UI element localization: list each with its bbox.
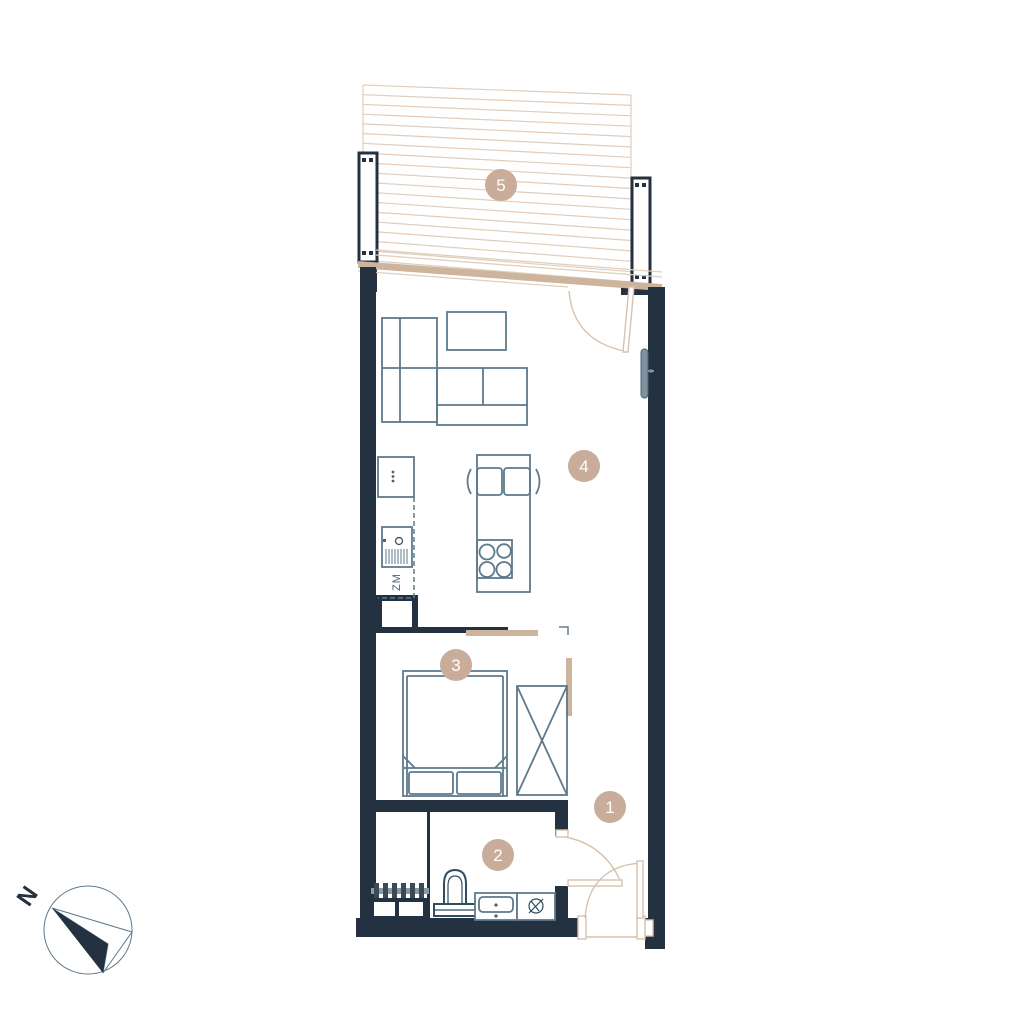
bedroom-sliding-door-horizontal xyxy=(466,630,538,636)
bedroom xyxy=(403,671,567,796)
compass-circle xyxy=(44,886,132,974)
pillow xyxy=(457,772,501,794)
floor-plan: ZM xyxy=(0,0,1024,1024)
towel-radiator xyxy=(371,883,429,898)
living-room xyxy=(382,312,654,425)
vanity-sink xyxy=(475,893,517,920)
wall-left xyxy=(360,267,376,937)
wall-bedroom-bathroom xyxy=(360,800,568,812)
cooktop xyxy=(477,540,512,578)
bathroom-partition xyxy=(427,812,430,900)
bed xyxy=(403,671,507,796)
kitchen-shaft xyxy=(376,595,418,633)
compass: N xyxy=(12,882,132,974)
coffee-table xyxy=(447,312,506,350)
compass-arrow-fill xyxy=(52,908,108,973)
room-label-3: 3 xyxy=(440,649,472,681)
room-label-5: 5 xyxy=(485,169,517,201)
bar-stools xyxy=(468,468,540,495)
balcony-screen-left xyxy=(359,153,377,262)
pillow xyxy=(409,772,453,794)
kitchen-island xyxy=(468,455,540,592)
wall-bathroom-hall-bottom xyxy=(555,886,568,918)
doors xyxy=(556,287,653,939)
svg-text:3: 3 xyxy=(451,656,460,675)
svg-text:2: 2 xyxy=(493,846,502,865)
wall-right xyxy=(648,287,665,949)
washing-machine xyxy=(517,893,555,920)
svg-text:1: 1 xyxy=(605,798,614,817)
kitchen-sink xyxy=(382,527,412,567)
bathroom-door xyxy=(556,830,622,886)
room-label-1: 1 xyxy=(594,791,626,823)
fridge xyxy=(378,457,414,497)
room-label-4: 4 xyxy=(568,450,600,482)
svg-text:5: 5 xyxy=(496,176,505,195)
svg-text:4: 4 xyxy=(579,457,588,476)
corner-tick xyxy=(559,627,568,635)
bathroom-duct xyxy=(370,898,430,918)
north-label: N xyxy=(12,882,44,912)
room-label-2: 2 xyxy=(482,839,514,871)
balcony-door xyxy=(569,287,634,352)
kitchen-counter: ZM xyxy=(378,457,414,598)
dishwasher-label: ZM xyxy=(391,573,403,591)
wardrobe xyxy=(517,686,567,795)
kitchen: ZM xyxy=(378,455,540,598)
